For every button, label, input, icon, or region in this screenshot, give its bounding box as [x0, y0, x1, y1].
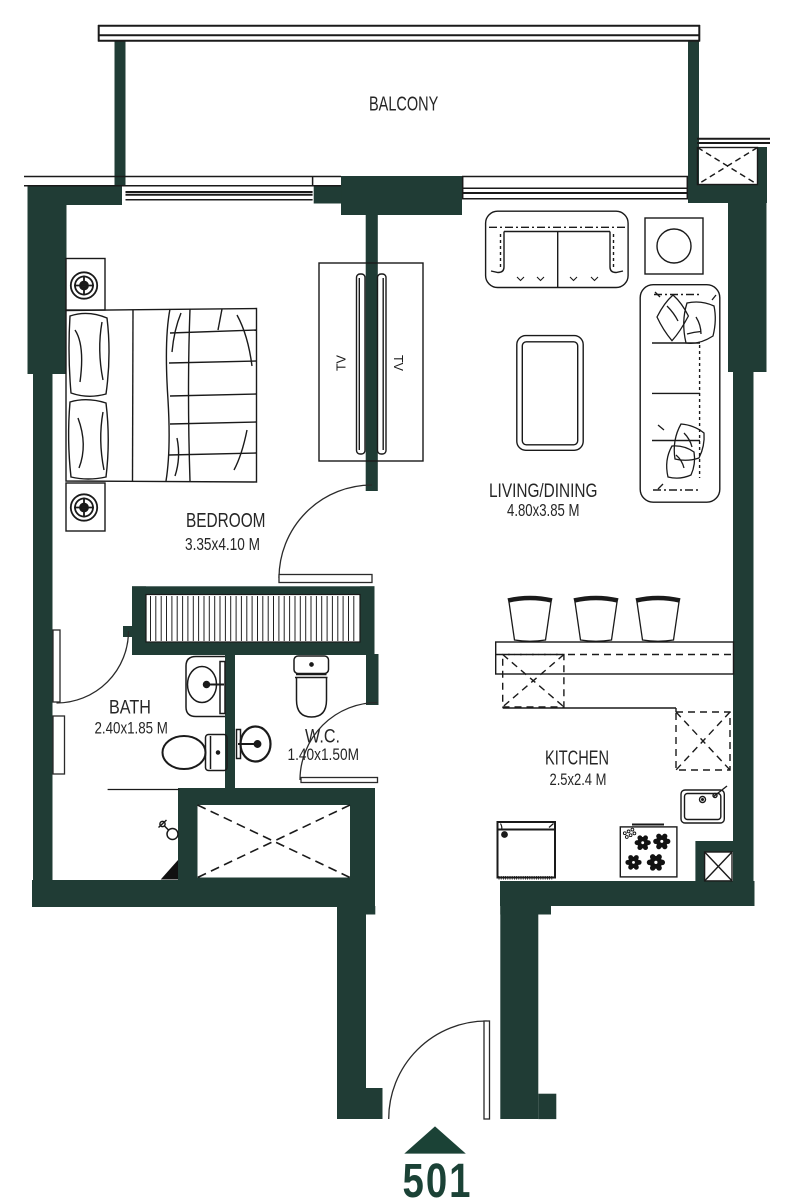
svg-text:1.40x1.50M: 1.40x1.50M: [288, 746, 359, 765]
svg-text:2.40x1.85 M: 2.40x1.85 M: [95, 719, 168, 738]
svg-text:2.5x2.4 M: 2.5x2.4 M: [550, 770, 607, 789]
svg-text:TV: TV: [391, 355, 405, 372]
svg-text:3.35x4.10 M: 3.35x4.10 M: [185, 535, 260, 554]
svg-text:W.C.: W.C.: [305, 725, 340, 747]
svg-text:KITCHEN: KITCHEN: [545, 746, 609, 769]
svg-text:501: 501: [403, 1155, 473, 1204]
svg-text:BALCONY: BALCONY: [369, 92, 438, 115]
svg-text:4.80x3.85 M: 4.80x3.85 M: [507, 501, 579, 520]
svg-text:BATH: BATH: [109, 696, 151, 718]
svg-text:TV: TV: [335, 354, 349, 371]
svg-text:LIVING/DINING: LIVING/DINING: [489, 479, 597, 501]
svg-text:BEDROOM: BEDROOM: [186, 509, 265, 531]
